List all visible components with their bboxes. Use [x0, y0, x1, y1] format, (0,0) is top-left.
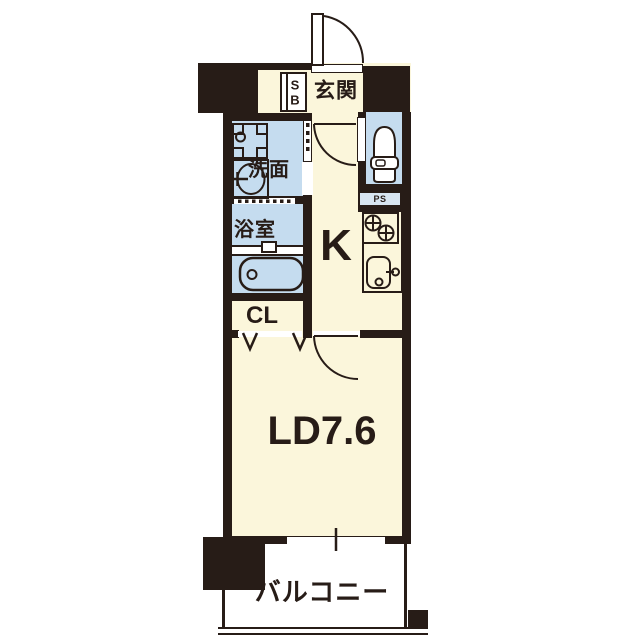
entrance-door-swing-icon — [324, 16, 363, 63]
wall-left — [223, 113, 232, 544]
entrance-door-leaf — [311, 13, 324, 66]
balcony-left-line — [222, 590, 225, 632]
balcony-railing — [218, 627, 428, 635]
shoe-box-label-bottom: B — [290, 93, 299, 108]
closet-label: CL — [246, 304, 278, 328]
wall-top-right-block — [363, 66, 410, 112]
wall-top — [256, 63, 313, 70]
washroom-label: 洗面 — [248, 160, 290, 180]
washroom-sliding-door — [303, 120, 312, 162]
wall-kitchen-left — [303, 196, 312, 338]
balcony-right-line — [404, 544, 407, 632]
entrance-label: 玄関 — [314, 81, 358, 102]
floor-plan: PS — [0, 0, 640, 640]
wall-kitchen-living-right — [360, 330, 411, 338]
bathroom-folding-door — [234, 198, 295, 204]
pipe-space-label: PS — [373, 195, 386, 204]
balcony-label: バルコニー — [255, 579, 389, 605]
sliding-window-icon — [287, 537, 385, 544]
shoe-box-label-top: S — [291, 78, 300, 93]
wall-bathroom-closet — [223, 293, 311, 301]
living-dining-label: LD7.6 — [268, 411, 377, 451]
bathtub-counter — [261, 241, 277, 253]
pipe-space-box: PS — [358, 191, 402, 207]
closet-folding-door-strip — [238, 331, 302, 337]
bathroom-label: 浴室 — [234, 220, 276, 240]
shoe-box-door-line — [286, 74, 288, 110]
kitchen-label: K — [320, 224, 352, 268]
kitchen-door-jamb — [357, 117, 366, 162]
washroom-door-opening — [302, 162, 313, 195]
wall-top-left-block — [198, 63, 258, 113]
wall-right — [402, 112, 411, 544]
wall-kitchen-living-left — [223, 330, 239, 338]
wall-entrance-washroom — [223, 113, 304, 121]
living-door-threshold — [313, 331, 360, 336]
toilet-floor — [360, 112, 402, 192]
